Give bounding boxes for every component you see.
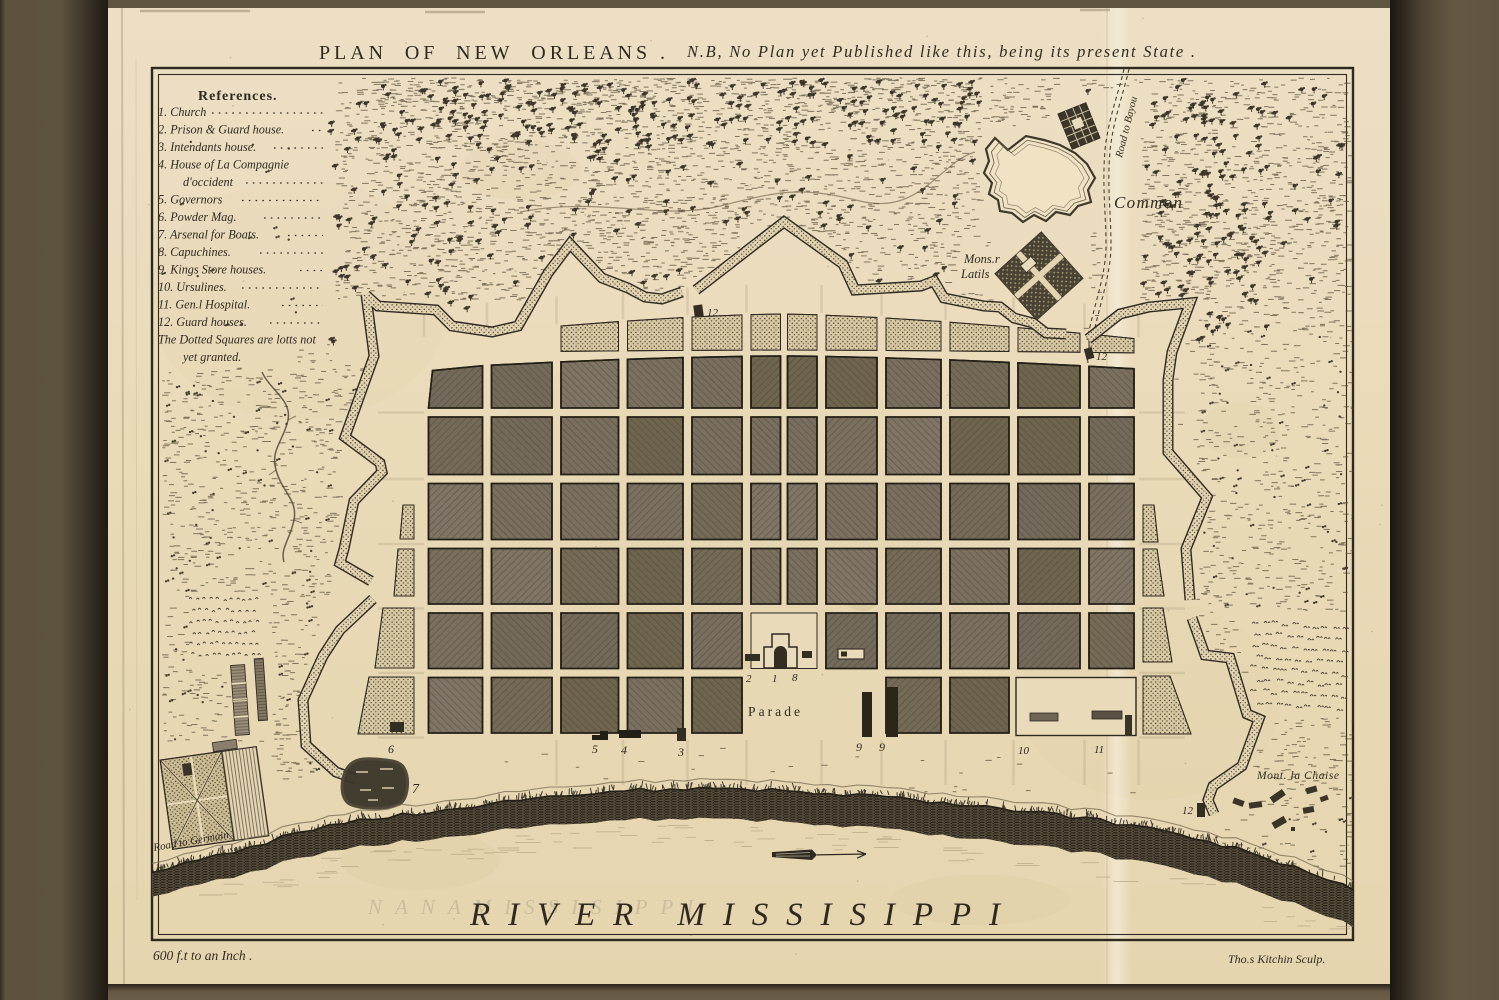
svg-text:Tho.s Kitchin Sculp.: Tho.s Kitchin Sculp. bbox=[1228, 952, 1325, 966]
svg-text:The Dotted Squares are lotts n: The Dotted Squares are lotts not bbox=[158, 333, 316, 347]
svg-text:PLAN OF NEW ORLEANS .: PLAN OF NEW ORLEANS . bbox=[319, 42, 668, 64]
svg-text:12: 12 bbox=[1096, 351, 1108, 363]
svg-text:3: 3 bbox=[677, 745, 684, 759]
svg-text:Parade: Parade bbox=[748, 704, 802, 719]
svg-text:11. Gen.l Hospital.: 11. Gen.l Hospital. bbox=[158, 298, 250, 312]
svg-text:5. Governors: 5. Governors bbox=[158, 193, 223, 207]
svg-text:8: 8 bbox=[792, 672, 798, 684]
svg-text:600 f.t to an Inch .: 600 f.t to an Inch . bbox=[153, 948, 252, 963]
svg-text:7: 7 bbox=[412, 782, 420, 797]
svg-text:8. Capuchines.: 8. Capuchines. bbox=[158, 245, 231, 259]
svg-text:7. Arsenal for Boats.: 7. Arsenal for Boats. bbox=[158, 228, 259, 242]
svg-text:References.: References. bbox=[198, 89, 278, 104]
svg-text:RIVER MISSISIPPI: RIVER MISSISIPPI bbox=[469, 897, 1006, 933]
svg-text:Mons.r: Mons.r bbox=[963, 252, 1000, 266]
svg-text:1: 1 bbox=[772, 673, 778, 685]
svg-text:6: 6 bbox=[388, 742, 394, 756]
svg-text:9: 9 bbox=[879, 740, 885, 754]
svg-text:9: 9 bbox=[856, 740, 862, 754]
svg-text:10: 10 bbox=[1018, 745, 1030, 757]
svg-text:5: 5 bbox=[592, 742, 598, 756]
svg-text:4. House of La Compagnie: 4. House of La Compagnie bbox=[158, 158, 290, 172]
svg-text:yet granted.: yet granted. bbox=[181, 350, 241, 364]
svg-text:6. Powder Mag.: 6. Powder Mag. bbox=[158, 210, 237, 224]
svg-text:12. Guard houses.: 12. Guard houses. bbox=[158, 315, 247, 329]
svg-text:12: 12 bbox=[707, 307, 719, 319]
svg-text:2: 2 bbox=[746, 673, 752, 685]
svg-text:3. Intendants house.: 3. Intendants house. bbox=[157, 140, 256, 154]
svg-text:2. Prison & Guard house.: 2. Prison & Guard house. bbox=[158, 123, 284, 137]
svg-text:Common: Common bbox=[1114, 193, 1182, 212]
svg-text:d'occident: d'occident bbox=[183, 175, 234, 189]
svg-text:Mont. la Chaise: Mont. la Chaise bbox=[1256, 770, 1339, 782]
svg-text:11: 11 bbox=[1094, 744, 1104, 756]
svg-text:4: 4 bbox=[621, 743, 627, 757]
svg-text:10. Ursulines.: 10. Ursulines. bbox=[158, 280, 227, 294]
svg-text:Latils: Latils bbox=[960, 267, 990, 281]
svg-text:1. Church: 1. Church bbox=[158, 105, 206, 119]
svg-text:9. Kings Store houses.: 9. Kings Store houses. bbox=[158, 263, 266, 277]
svg-text:12: 12 bbox=[1182, 805, 1194, 817]
